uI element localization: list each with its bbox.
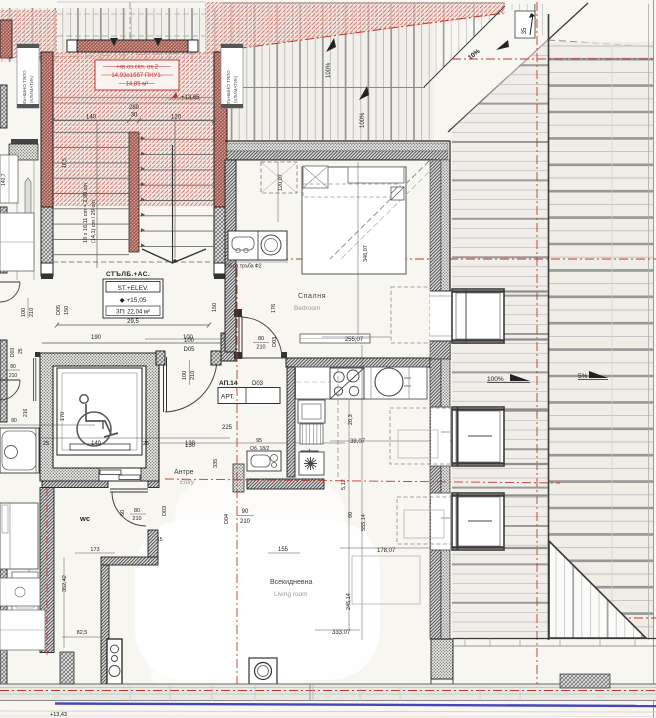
svg-text:210: 210 [9, 373, 18, 379]
svg-text:Спалня: Спалня [298, 293, 326, 300]
svg-text:245,14: 245,14 [346, 593, 352, 610]
svg-text:352,42: 352,42 [62, 575, 68, 592]
svg-text:D04: D04 [224, 514, 230, 524]
svg-text:+13,43: +13,43 [50, 712, 67, 718]
svg-text:190: 190 [91, 335, 102, 341]
svg-text:100%: 100% [487, 376, 504, 383]
svg-text:210: 210 [240, 519, 251, 525]
svg-text:(КЛИМАТИК): (КЛИМАТИК) [233, 75, 238, 103]
svg-text:ST.+ELEV.: ST.+ELEV. [117, 285, 148, 292]
svg-text:Entry: Entry [180, 480, 195, 486]
svg-text:176: 176 [271, 304, 277, 313]
svg-text:140: 140 [91, 441, 102, 447]
svg-text:Антре: Антре [174, 469, 194, 476]
svg-text:+кв.оз.скл. ок.2: +кв.оз.скл. ок.2 [116, 65, 159, 71]
svg-text:ВЪНШНО ТЯЛО: ВЪНШНО ТЯЛО [22, 70, 27, 105]
svg-text:+13,65: +13,65 [181, 95, 200, 101]
svg-text:140,7: 140,7 [1, 173, 7, 186]
svg-text:D03: D03 [162, 506, 168, 516]
svg-text:210: 210 [190, 371, 196, 380]
svg-text:38,07: 38,07 [350, 439, 366, 445]
svg-text:60: 60 [120, 510, 126, 516]
svg-text:Bedroom: Bedroom [294, 305, 320, 312]
svg-text:100: 100 [21, 308, 27, 317]
svg-text:ВЪНШНО ТЯЛО: ВЪНШНО ТЯЛО [226, 70, 231, 105]
svg-text:Об.са тръба Ф2: Об.са тръба Ф2 [225, 264, 262, 270]
svg-text:120: 120 [171, 115, 182, 121]
svg-text:100%: 100% [360, 112, 366, 128]
svg-text:155: 155 [278, 547, 289, 553]
svg-text:(КЛИМАТИК): (КЛИМАТИК) [29, 75, 34, 103]
svg-text:СТЪЛБ.+АС.: СТЪЛБ.+АС. [106, 271, 150, 278]
svg-text:◆ +15,05: ◆ +15,05 [120, 297, 147, 304]
svg-text:18 х 16,11 cm = 2,90 cm: 18 х 16,11 cm = 2,90 cm [83, 183, 89, 243]
svg-text:Living room: Living room [274, 591, 308, 598]
svg-text:140: 140 [86, 115, 97, 121]
svg-text:D03: D03 [272, 337, 278, 347]
svg-text:150: 150 [64, 306, 70, 315]
svg-text:335: 335 [213, 459, 219, 468]
svg-text:346,07: 346,07 [363, 245, 369, 262]
svg-text:90: 90 [242, 509, 249, 515]
svg-text:D05: D05 [183, 347, 195, 353]
svg-text:35: 35 [522, 27, 528, 34]
svg-text:(14,1) cm / 29 cm: (14,1) cm / 29 cm [91, 200, 97, 243]
svg-text:5%: 5% [578, 373, 588, 380]
svg-text:wc: wc [79, 514, 90, 523]
svg-text:80: 80 [258, 336, 264, 342]
svg-text:225: 225 [222, 425, 233, 431]
svg-text:178,07: 178,07 [377, 548, 396, 554]
svg-text:16,5: 16,5 [62, 158, 68, 168]
svg-text:D05: D05 [56, 305, 62, 315]
svg-text:14,93о1бб7 ПНУ1-: 14,93о1бб7 ПНУ1- [111, 73, 162, 79]
svg-text:15: 15 [157, 537, 163, 543]
svg-text:210: 210 [29, 308, 35, 317]
svg-text:130: 130 [185, 443, 196, 449]
svg-text:30: 30 [131, 113, 138, 119]
svg-text:255,07: 255,07 [345, 337, 364, 343]
svg-text:80: 80 [134, 508, 140, 514]
svg-text:АП.14: АП.14 [219, 380, 238, 387]
svg-text:АРТ.: АРТ. [221, 394, 235, 401]
svg-text:173: 173 [90, 547, 99, 553]
svg-text:82,5: 82,5 [77, 630, 88, 636]
svg-text:14,85 м²: 14,85 м² [126, 82, 149, 88]
svg-text:D03: D03 [252, 381, 264, 387]
svg-text:80: 80 [10, 364, 16, 370]
svg-text:333,07: 333,07 [332, 630, 351, 636]
svg-text:29,5: 29,5 [127, 319, 139, 325]
svg-text:210: 210 [132, 516, 141, 522]
svg-text:216: 216 [23, 408, 29, 417]
svg-text:100: 100 [182, 371, 188, 380]
svg-text:80: 80 [11, 418, 17, 424]
svg-text:150: 150 [212, 303, 218, 312]
svg-text:120,07: 120,07 [278, 174, 284, 191]
svg-text:D03: D03 [10, 348, 16, 357]
svg-text:280: 280 [129, 105, 140, 111]
svg-text:170: 170 [60, 412, 66, 421]
svg-text:25: 25 [43, 441, 49, 447]
svg-text:210: 210 [256, 345, 265, 351]
svg-text:25: 25 [143, 441, 149, 447]
svg-text:100%: 100% [326, 62, 332, 78]
svg-text:25: 25 [18, 348, 24, 354]
svg-text:Всекидневна: Всекидневна [270, 579, 312, 586]
svg-text:ЗП: 22,04 м²: ЗП: 22,04 м² [116, 310, 150, 316]
